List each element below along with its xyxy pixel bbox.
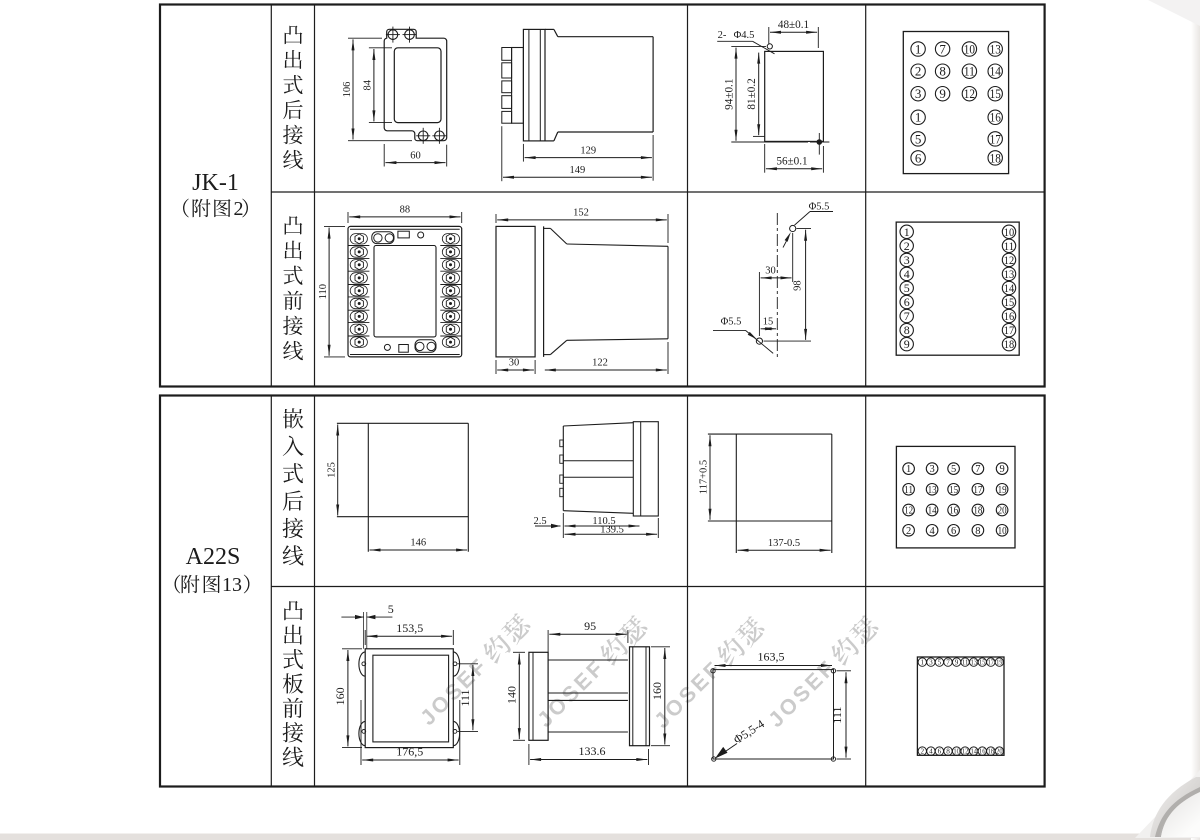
svg-text:13: 13 [928, 485, 937, 496]
svg-text:5: 5 [938, 659, 942, 667]
svg-text:1: 1 [906, 464, 911, 475]
svg-text:13: 13 [970, 659, 977, 667]
svg-text:12: 12 [962, 748, 969, 756]
svg-text:110: 110 [318, 284, 329, 299]
svg-text:15: 15 [1004, 295, 1014, 309]
svg-text:12: 12 [904, 506, 913, 517]
svg-text:6: 6 [904, 295, 910, 309]
svg-text:81±0.2: 81±0.2 [746, 78, 758, 109]
svg-text:125: 125 [326, 462, 337, 478]
svg-text:10: 10 [953, 748, 960, 756]
svg-text:3: 3 [915, 86, 922, 101]
svg-text:18: 18 [973, 506, 982, 517]
svg-text:30: 30 [765, 265, 776, 276]
svg-text:88: 88 [400, 204, 411, 215]
svg-text:6: 6 [951, 526, 956, 537]
svg-text:2.5: 2.5 [533, 516, 546, 527]
svg-text:160: 160 [333, 687, 347, 705]
svg-text:2: 2 [921, 748, 925, 756]
svg-text:7: 7 [975, 464, 980, 475]
svg-text:4: 4 [929, 748, 933, 756]
svg-text:8: 8 [946, 748, 950, 756]
svg-text:16: 16 [990, 110, 1002, 125]
svg-text:4: 4 [929, 526, 935, 537]
svg-text:2: 2 [915, 64, 922, 79]
svg-text:9: 9 [904, 337, 910, 351]
svg-text:30: 30 [509, 358, 520, 369]
svg-text:98: 98 [793, 280, 804, 291]
svg-text:8: 8 [939, 64, 946, 79]
svg-text:13: 13 [1004, 267, 1014, 281]
svg-text:16: 16 [949, 506, 958, 517]
svg-text:94±0.1: 94±0.1 [723, 79, 735, 110]
svg-text:17: 17 [990, 131, 1002, 146]
svg-text:60: 60 [410, 150, 421, 161]
svg-text:146: 146 [410, 538, 426, 549]
svg-text:9: 9 [999, 464, 1004, 475]
svg-text:6: 6 [915, 150, 922, 165]
svg-text:19: 19 [996, 659, 1003, 667]
svg-text:8: 8 [904, 323, 910, 337]
svg-text:1: 1 [915, 110, 922, 125]
svg-text:Φ4.5: Φ4.5 [734, 30, 755, 41]
svg-text:111: 111 [458, 689, 472, 706]
svg-text:19: 19 [998, 485, 1007, 496]
svg-text:6: 6 [938, 748, 942, 756]
svg-text:3: 3 [929, 464, 934, 475]
svg-text:8: 8 [975, 526, 980, 537]
svg-text:13: 13 [222, 574, 242, 596]
svg-text:18: 18 [990, 150, 1001, 165]
svg-text:17: 17 [973, 485, 982, 496]
svg-text:20: 20 [996, 748, 1003, 756]
svg-text:153,5: 153,5 [396, 621, 423, 635]
svg-text:176,5: 176,5 [396, 745, 423, 759]
svg-text:11: 11 [904, 485, 913, 496]
svg-text:3: 3 [904, 253, 910, 267]
svg-text:3: 3 [929, 659, 933, 667]
svg-text:10: 10 [964, 41, 975, 56]
svg-text:14: 14 [1004, 281, 1014, 295]
svg-text:122: 122 [592, 358, 608, 369]
svg-text:10: 10 [998, 526, 1007, 537]
svg-text:18: 18 [988, 748, 995, 756]
svg-text:133.6: 133.6 [579, 744, 606, 758]
svg-text:117+0.5: 117+0.5 [699, 460, 710, 494]
svg-text:5: 5 [915, 131, 922, 146]
svg-text:15: 15 [763, 316, 774, 327]
svg-text:11: 11 [964, 64, 975, 79]
svg-text:5: 5 [951, 464, 956, 475]
svg-text:139.5: 139.5 [600, 525, 624, 536]
svg-text:1: 1 [904, 225, 910, 239]
svg-text:17: 17 [988, 659, 995, 667]
svg-text:A22S: A22S [186, 544, 241, 570]
svg-text:7: 7 [946, 659, 950, 667]
svg-text:14: 14 [970, 748, 977, 756]
svg-text:Φ5.5: Φ5.5 [809, 202, 830, 213]
svg-text:16: 16 [1004, 309, 1014, 323]
svg-text:137-0.5: 137-0.5 [768, 538, 800, 549]
svg-text:17: 17 [1004, 323, 1014, 337]
svg-text:7: 7 [904, 309, 910, 323]
svg-text:48±0.1: 48±0.1 [778, 19, 809, 31]
svg-text:2-: 2- [718, 30, 727, 41]
svg-text:11: 11 [962, 659, 969, 667]
svg-text:20: 20 [998, 506, 1007, 517]
svg-text:15: 15 [979, 659, 986, 667]
svg-text:2: 2 [904, 239, 910, 253]
svg-text:7: 7 [939, 41, 946, 56]
svg-text:15: 15 [949, 485, 958, 496]
svg-text:140: 140 [505, 686, 519, 704]
svg-text:18: 18 [1004, 337, 1014, 351]
svg-text:4: 4 [904, 267, 910, 281]
svg-text:129: 129 [580, 145, 596, 156]
svg-text:5: 5 [388, 602, 394, 616]
svg-text:5: 5 [904, 281, 910, 295]
svg-text:11: 11 [1004, 239, 1014, 253]
svg-text:12: 12 [1004, 253, 1014, 267]
svg-text:2: 2 [906, 526, 911, 537]
svg-text:2: 2 [234, 198, 244, 220]
svg-text:84: 84 [363, 79, 374, 90]
svg-text:14: 14 [928, 506, 938, 517]
svg-text:13: 13 [990, 41, 1001, 56]
svg-text:1: 1 [921, 659, 925, 667]
svg-text:106: 106 [342, 82, 353, 98]
svg-text:12: 12 [964, 86, 975, 101]
svg-text:56±0.1: 56±0.1 [776, 156, 807, 168]
svg-text:111: 111 [830, 706, 844, 723]
svg-text:15: 15 [990, 86, 1001, 101]
svg-text:16: 16 [979, 748, 986, 756]
svg-text:95: 95 [584, 619, 596, 633]
svg-text:163,5: 163,5 [758, 650, 785, 664]
svg-text:10: 10 [1004, 225, 1014, 239]
svg-text:Φ5.5: Φ5.5 [721, 317, 742, 328]
svg-text:9: 9 [939, 86, 946, 101]
svg-text:149: 149 [570, 165, 586, 176]
svg-text:JK-1: JK-1 [192, 170, 239, 196]
svg-text:9: 9 [955, 659, 959, 667]
svg-text:152: 152 [573, 207, 589, 218]
svg-text:1: 1 [915, 41, 922, 56]
svg-text:160: 160 [650, 682, 664, 700]
svg-text:14: 14 [990, 64, 1002, 79]
